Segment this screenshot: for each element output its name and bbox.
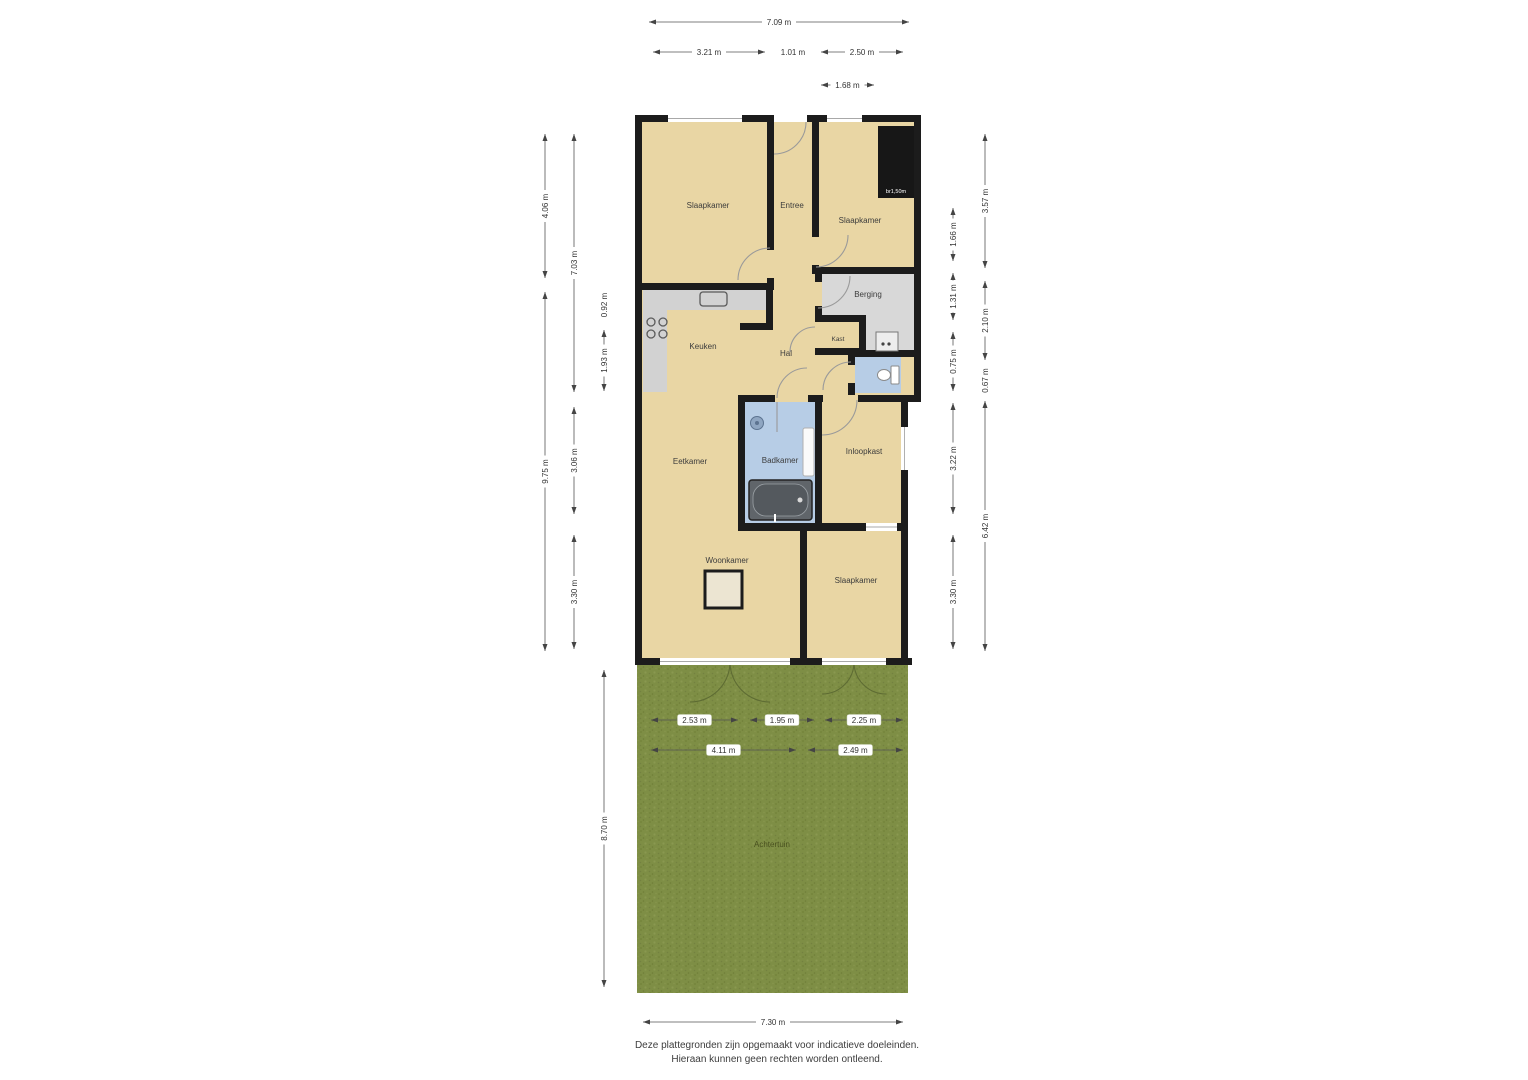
dimension-label: 3.30 m bbox=[949, 579, 958, 604]
building: br1,50m bbox=[635, 115, 921, 665]
disclaimer-line1: Deze plattegronden zijn opgemaakt voor i… bbox=[635, 1040, 919, 1051]
dimension: 3.22 m bbox=[948, 403, 959, 514]
dimension-label: 2.50 m bbox=[850, 48, 875, 57]
dimension-label: 0.67 m bbox=[981, 368, 990, 393]
dimension-label: 1.95 m bbox=[770, 716, 795, 725]
dimension-label: 7.30 m bbox=[761, 1018, 786, 1027]
washing-machine-knob bbox=[887, 342, 890, 345]
dimension: 0.67 m bbox=[980, 365, 991, 397]
dimension-label: 3.22 m bbox=[949, 446, 958, 471]
washing-machine-knob bbox=[881, 342, 884, 345]
dimension-label: 0.92 m bbox=[600, 292, 609, 317]
room-label-slaapkamer3: Slaapkamer bbox=[835, 576, 878, 585]
garden-lawn bbox=[637, 662, 908, 993]
dimension: 3.57 m bbox=[980, 134, 991, 268]
dimension-label: 1.68 m bbox=[835, 81, 860, 90]
dimension: 7.03 m bbox=[569, 134, 580, 392]
room-label-achtertuin: Achtertuin bbox=[754, 840, 790, 849]
dimension: 1.68 m bbox=[821, 80, 874, 91]
dimension-label: 1.66 m bbox=[949, 222, 958, 247]
dimension-label: 2.25 m bbox=[852, 716, 877, 725]
dimension-label: 1.93 m bbox=[600, 348, 609, 373]
disclaimer-line2: Hieraan kunnen geen rechten worden ontle… bbox=[671, 1054, 882, 1065]
room-label-kast: Kast bbox=[831, 336, 844, 343]
dimension-label: 2.49 m bbox=[843, 746, 868, 755]
dimension-label: 8.70 m bbox=[600, 816, 609, 841]
dimension: 1.01 m bbox=[776, 47, 810, 58]
dimension: 3.30 m bbox=[948, 535, 959, 649]
dimension-label: 2.53 m bbox=[682, 716, 707, 725]
kitchen-counter-top bbox=[643, 290, 771, 310]
dimension-label: 1.01 m bbox=[781, 48, 806, 57]
floorplan-drawing: Achtertuin br1,50m bbox=[0, 0, 1528, 1080]
dimension: 1.93 m bbox=[599, 330, 610, 391]
room-label-woonkamer: Woonkamer bbox=[706, 556, 749, 565]
dimension-label: 3.57 m bbox=[981, 188, 990, 213]
dimension-label: 9.75 m bbox=[541, 459, 550, 484]
washing-machine-icon bbox=[876, 332, 898, 351]
floorplan-page: Achtertuin br1,50m bbox=[0, 0, 1528, 1080]
room-label-slaapkamer2: Slaapkamer bbox=[839, 216, 882, 225]
room-kast-floor bbox=[822, 322, 859, 348]
room-label-slaapkamer1: Slaapkamer bbox=[687, 201, 730, 210]
dimension-label: 3.21 m bbox=[697, 48, 722, 57]
dimension-label: 0.75 m bbox=[949, 349, 958, 374]
room-label-keuken: Keuken bbox=[689, 342, 716, 351]
room-label-inloopkast: Inloopkast bbox=[846, 447, 883, 456]
room-label-eetkamer: Eetkamer bbox=[673, 457, 708, 466]
dimension-label: 4.06 m bbox=[541, 193, 550, 218]
dimension: 8.70 m bbox=[599, 670, 610, 987]
bathtub-drain bbox=[798, 498, 803, 503]
dimension: 6.42 m bbox=[980, 401, 991, 651]
washbasin-icon bbox=[803, 428, 814, 476]
room-label-badkamer: Badkamer bbox=[762, 456, 799, 465]
room-label-entree: Entree bbox=[780, 201, 804, 210]
front-door-opening bbox=[774, 115, 807, 122]
dimension-label: 3.06 m bbox=[570, 448, 579, 473]
shower-head-center bbox=[755, 421, 759, 425]
dimension-label: 6.42 m bbox=[981, 513, 990, 538]
dimension: 4.06 m bbox=[540, 134, 551, 278]
closet-annotation: br1,50m bbox=[886, 189, 907, 195]
room-label-berging: Berging bbox=[854, 290, 882, 299]
dimension-label: 2.10 m bbox=[981, 308, 990, 333]
garden: Achtertuin bbox=[637, 662, 908, 993]
room-label-hal: Hal bbox=[780, 349, 792, 358]
dimension-label: 1.31 m bbox=[949, 284, 958, 309]
dimension: 7.09 m bbox=[649, 17, 909, 28]
dimension-label: 3.30 m bbox=[570, 579, 579, 604]
dimension-label: 4.11 m bbox=[712, 746, 736, 755]
dimension: 0.75 m bbox=[948, 332, 959, 391]
dimension: 9.75 m bbox=[540, 292, 551, 651]
toilet-bowl-icon bbox=[878, 370, 891, 381]
dimension: 3.21 m bbox=[653, 47, 765, 58]
dimension: 1.66 m bbox=[948, 208, 959, 261]
dimension: 7.30 m bbox=[643, 1017, 903, 1028]
toilet-tank-icon bbox=[891, 366, 899, 384]
dimension: 2.10 m bbox=[980, 281, 991, 360]
dimension: 0.92 m bbox=[599, 289, 610, 321]
dimension: 2.50 m bbox=[821, 47, 903, 58]
fireplace-block-icon bbox=[705, 571, 742, 608]
dimension: 3.30 m bbox=[569, 535, 580, 649]
dimension: 1.31 m bbox=[948, 273, 959, 320]
dimension-label: 7.09 m bbox=[767, 18, 792, 27]
dimension-label: 7.03 m bbox=[570, 250, 579, 275]
shaft-closet bbox=[878, 126, 914, 198]
dimension: 3.06 m bbox=[569, 407, 580, 514]
